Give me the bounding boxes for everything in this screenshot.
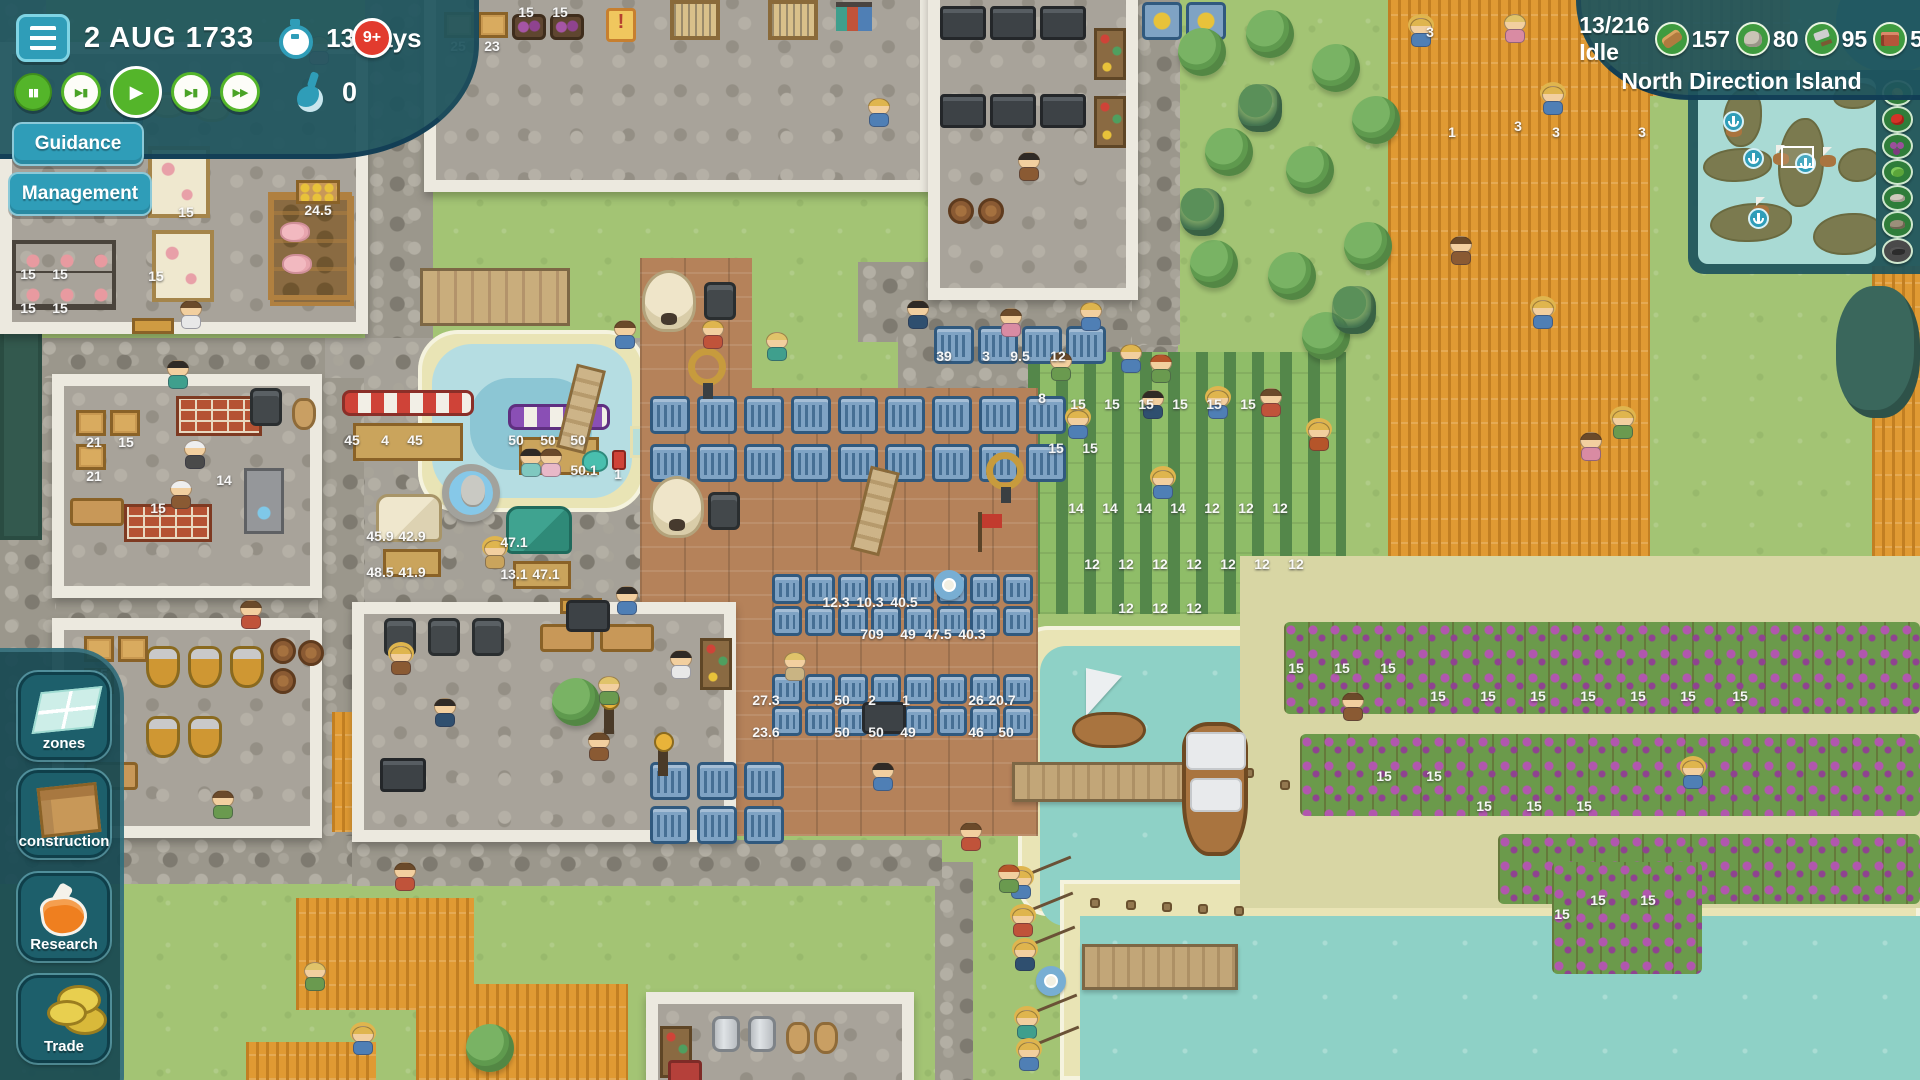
stock-label: 12 bbox=[1152, 556, 1168, 572]
stock-label: 15 bbox=[1590, 892, 1606, 908]
faster-button[interactable]: ▶▶ bbox=[220, 72, 260, 112]
science-flask-icon bbox=[295, 72, 325, 112]
barrel-sprite bbox=[270, 638, 296, 664]
resource-stone: 80 bbox=[1736, 22, 1799, 56]
resource-tools: 95 bbox=[1805, 22, 1868, 56]
population-idle: 13/216 Idle bbox=[1579, 12, 1649, 66]
boulder-icon[interactable] bbox=[1882, 211, 1913, 237]
tree-sprite bbox=[1246, 10, 1294, 58]
barrel-sprite bbox=[978, 198, 1004, 224]
stock-label: 21 bbox=[86, 468, 102, 484]
terrain-cropO bbox=[416, 984, 628, 1080]
villager[interactable] bbox=[1014, 1008, 1038, 1038]
stock-label: 47.5 bbox=[924, 626, 951, 642]
villager[interactable] bbox=[1306, 420, 1330, 450]
stock-label: 46 bbox=[968, 724, 984, 740]
stock-label: 15 bbox=[1580, 688, 1596, 704]
trade-label: Trade bbox=[44, 1038, 84, 1055]
stock-label: 15 bbox=[1172, 396, 1188, 412]
notification-badge[interactable]: 9+ bbox=[352, 18, 392, 58]
storage-bin[interactable] bbox=[885, 396, 925, 434]
villager[interactable] bbox=[1680, 758, 1704, 788]
tree-sprite bbox=[1286, 146, 1334, 194]
pine-sprite bbox=[1332, 286, 1376, 334]
stock-label: 15 bbox=[20, 266, 36, 282]
villager[interactable] bbox=[1012, 940, 1036, 970]
ropewheel-sprite bbox=[986, 452, 1024, 490]
minimap-island bbox=[1813, 213, 1876, 255]
stock-label: 15 bbox=[518, 4, 534, 20]
tree-sprite bbox=[1178, 28, 1226, 76]
lifebuoy-sprite bbox=[1036, 966, 1066, 996]
storage-bin[interactable] bbox=[805, 674, 835, 704]
villager[interactable] bbox=[1148, 352, 1172, 382]
villager[interactable] bbox=[586, 730, 610, 760]
zones-icon bbox=[32, 686, 103, 734]
villager[interactable] bbox=[1065, 408, 1089, 438]
stock-label: 50 bbox=[868, 724, 884, 740]
stock-label: 15 bbox=[20, 300, 36, 316]
machineblack-sprite bbox=[990, 6, 1036, 40]
location-name: North Direction Island bbox=[1621, 68, 1861, 95]
cabbage-icon[interactable] bbox=[1882, 159, 1913, 185]
stove-sprite bbox=[704, 282, 736, 320]
stock-label: 50 bbox=[508, 432, 524, 448]
warnsign-sprite bbox=[606, 8, 636, 42]
villager[interactable] bbox=[764, 330, 788, 360]
villager[interactable] bbox=[210, 788, 234, 818]
stock-label: 12 bbox=[1204, 500, 1220, 516]
storage-bin[interactable] bbox=[1003, 574, 1033, 604]
lantern-sprite bbox=[604, 700, 614, 734]
terrain-cobble bbox=[1132, 0, 1180, 345]
post-sprite bbox=[1234, 906, 1244, 916]
kiln-sprite bbox=[650, 476, 704, 538]
stock-label: 709 bbox=[860, 626, 883, 642]
stock-label: 12 bbox=[1254, 556, 1270, 572]
tree-sprite bbox=[1205, 128, 1253, 176]
storage-bin[interactable] bbox=[697, 396, 737, 434]
research-label: Research bbox=[30, 936, 98, 953]
research-flask-icon bbox=[38, 893, 89, 939]
loom-sprite bbox=[670, 0, 720, 40]
resource-bricks: 55 bbox=[1873, 22, 1920, 56]
stock-label: 13.1 bbox=[500, 566, 527, 582]
storage-bin[interactable] bbox=[697, 444, 737, 482]
counterbrick-sprite bbox=[124, 504, 212, 542]
villager[interactable] bbox=[1258, 386, 1282, 416]
villager[interactable] bbox=[1340, 690, 1364, 720]
storage-bin[interactable] bbox=[650, 806, 690, 844]
stock-label: 14 bbox=[1136, 500, 1152, 516]
anchor-icon bbox=[1723, 111, 1744, 132]
villager[interactable] bbox=[1016, 150, 1040, 180]
stock-label: 15 bbox=[1680, 688, 1696, 704]
anchor-icon bbox=[1748, 208, 1769, 229]
game-date: 2 AUG 1733 bbox=[84, 22, 254, 55]
stock-label: 3 bbox=[1638, 124, 1646, 140]
stock-label: 14 bbox=[1068, 500, 1084, 516]
stock-label: 12 bbox=[1186, 556, 1202, 572]
villager[interactable] bbox=[1448, 234, 1472, 264]
villager[interactable] bbox=[1010, 906, 1034, 936]
pine-sprite bbox=[1238, 84, 1282, 132]
stock-label: 15 bbox=[1476, 798, 1492, 814]
playback-controls: ▮▮▶▮▶▶▮▶▶ bbox=[14, 66, 260, 118]
research-button[interactable]: Research bbox=[18, 873, 110, 961]
clothesrack-sprite bbox=[836, 2, 872, 40]
canvas-sprite bbox=[152, 230, 214, 302]
storage-bin[interactable] bbox=[979, 396, 1019, 434]
stock-label: 15 bbox=[1380, 660, 1396, 676]
stock-label: 4 bbox=[381, 432, 389, 448]
stock-label: 42.9 bbox=[398, 528, 425, 544]
villager[interactable] bbox=[1016, 1040, 1040, 1070]
villager[interactable] bbox=[612, 318, 636, 348]
tree-sprite bbox=[466, 1024, 514, 1072]
tree-sprite bbox=[1312, 44, 1360, 92]
villager[interactable] bbox=[866, 96, 890, 126]
keg-sprite bbox=[748, 1016, 776, 1052]
storage-bin[interactable] bbox=[805, 706, 835, 736]
storage-bin[interactable] bbox=[932, 396, 972, 434]
shelfjars-sprite bbox=[1094, 28, 1126, 80]
keg-sprite bbox=[712, 1016, 740, 1052]
villager[interactable] bbox=[182, 438, 206, 468]
zones-button[interactable]: zones bbox=[18, 672, 110, 760]
storage-bin[interactable] bbox=[1003, 606, 1033, 636]
machineblack-sprite bbox=[990, 94, 1036, 128]
stock-label: 23.6 bbox=[752, 724, 779, 740]
stock-label: 15 bbox=[1480, 688, 1496, 704]
stock-label: 50 bbox=[834, 724, 850, 740]
terrain-cobble bbox=[935, 862, 973, 1080]
minimap-panel bbox=[1688, 70, 1920, 274]
villager[interactable] bbox=[958, 820, 982, 850]
pause-button[interactable]: ▮▮ bbox=[14, 73, 52, 111]
stock-label: 14 bbox=[216, 472, 232, 488]
stock-label: 24.5 bbox=[304, 202, 331, 218]
construction-button[interactable]: construction bbox=[18, 770, 110, 858]
game-viewport[interactable]: 151524.515151515252315152115211514154544… bbox=[0, 0, 1920, 1080]
stock-label: 3 bbox=[1514, 118, 1522, 134]
stock-label: 15 bbox=[1138, 396, 1154, 412]
villager[interactable] bbox=[1540, 84, 1564, 114]
still-sprite bbox=[188, 716, 222, 758]
storage-bin[interactable] bbox=[1066, 326, 1106, 364]
stock-label: 1 bbox=[1448, 124, 1456, 140]
storage-bin[interactable] bbox=[744, 396, 784, 434]
minimap[interactable] bbox=[1698, 78, 1876, 264]
ropewheel-sprite bbox=[688, 348, 726, 386]
villager[interactable] bbox=[596, 674, 620, 704]
villager[interactable] bbox=[432, 696, 456, 726]
storage-bin[interactable] bbox=[772, 574, 802, 604]
fast-button[interactable]: ▶▮ bbox=[171, 72, 211, 112]
terrain-water bbox=[1080, 916, 1920, 1080]
storage-bin[interactable] bbox=[744, 806, 784, 844]
lifebuoy-sprite bbox=[934, 570, 964, 600]
stock-label: 12 bbox=[1186, 600, 1202, 616]
play-button[interactable]: ▶ bbox=[110, 66, 162, 118]
stock-label: 15 bbox=[178, 204, 194, 220]
villager[interactable] bbox=[905, 298, 929, 328]
villager[interactable] bbox=[1578, 430, 1602, 460]
villager[interactable] bbox=[165, 358, 189, 388]
tree-sprite bbox=[1344, 222, 1392, 270]
stock-label: 40.3 bbox=[958, 626, 985, 642]
storage-bin[interactable] bbox=[772, 606, 802, 636]
villager[interactable] bbox=[1502, 12, 1526, 42]
stock-label: 50 bbox=[998, 724, 1014, 740]
stock-label: 21 bbox=[86, 434, 102, 450]
ship-sprite bbox=[1182, 722, 1248, 856]
stock-label: 15 bbox=[148, 268, 164, 284]
stock-label: 12 bbox=[1118, 600, 1134, 616]
stock-label: 47.1 bbox=[500, 534, 527, 550]
grapes-icon[interactable] bbox=[1882, 133, 1913, 159]
coal-icon[interactable] bbox=[1882, 238, 1913, 264]
tree-sprite bbox=[1352, 96, 1400, 144]
villager[interactable] bbox=[1118, 342, 1142, 372]
jug-sprite bbox=[292, 398, 316, 430]
resource-wood: 157 bbox=[1655, 22, 1730, 56]
guidance-button[interactable]: Guidance bbox=[12, 122, 144, 166]
jug-sprite bbox=[814, 1022, 838, 1054]
crate-sprite bbox=[76, 410, 106, 436]
post-sprite bbox=[1090, 898, 1100, 908]
stock-label: 49 bbox=[900, 724, 916, 740]
lantern-sprite bbox=[658, 742, 668, 776]
minimap-viewport[interactable] bbox=[1781, 146, 1814, 168]
post-sprite bbox=[1280, 780, 1290, 790]
machineblack-sprite bbox=[380, 758, 426, 792]
step-button[interactable]: ▶▮ bbox=[61, 72, 101, 112]
crate-sprite bbox=[110, 410, 140, 436]
storage-bin[interactable] bbox=[697, 806, 737, 844]
minimap-ship bbox=[1820, 155, 1836, 167]
villager[interactable] bbox=[700, 318, 724, 348]
stock-label: 27.3 bbox=[752, 692, 779, 708]
stock-label: 45.9 bbox=[366, 528, 393, 544]
stock-label: 3 bbox=[982, 348, 990, 364]
stove-sprite bbox=[472, 618, 504, 656]
minimap-island bbox=[1838, 148, 1876, 182]
jug-sprite bbox=[786, 1022, 810, 1054]
still-sprite bbox=[146, 646, 180, 688]
storage-bin[interactable] bbox=[937, 674, 967, 704]
stock-label: 15 bbox=[1070, 396, 1086, 412]
stock-label: 12 bbox=[1050, 348, 1066, 364]
stallred-sprite bbox=[342, 390, 474, 416]
wood-icon bbox=[1655, 22, 1689, 56]
construction-icon bbox=[37, 782, 102, 838]
stock-label: 15 bbox=[1640, 892, 1656, 908]
stock-label: 15 bbox=[1048, 440, 1064, 456]
villager[interactable] bbox=[668, 648, 692, 678]
storage-bin[interactable] bbox=[932, 444, 972, 482]
stock-label: 20.7 bbox=[988, 692, 1015, 708]
trough-sprite bbox=[296, 180, 340, 204]
terrain-vines bbox=[1552, 862, 1702, 974]
villager[interactable] bbox=[538, 446, 562, 476]
world-map[interactable]: 151524.515151515252315152115211514154544… bbox=[0, 0, 1920, 1080]
zones-label: zones bbox=[43, 735, 86, 752]
stove-sprite bbox=[708, 492, 740, 530]
villager[interactable] bbox=[998, 306, 1022, 336]
stock-label: 8 bbox=[1038, 390, 1046, 406]
tree-sprite bbox=[1190, 240, 1238, 288]
crate-sprite bbox=[478, 12, 508, 38]
stock-label: 45 bbox=[344, 432, 360, 448]
anchor-icon bbox=[1743, 148, 1764, 169]
flag-sprite bbox=[976, 512, 1002, 552]
stock-label: 2 bbox=[868, 692, 876, 708]
storage-bin[interactable] bbox=[805, 606, 835, 636]
stock-label: 3 bbox=[1426, 24, 1434, 40]
villager[interactable] bbox=[1610, 408, 1634, 438]
storage-bin[interactable] bbox=[838, 396, 878, 434]
still-sprite bbox=[146, 716, 180, 758]
machineblack-sprite bbox=[1040, 94, 1086, 128]
shelfjars-sprite bbox=[1094, 96, 1126, 148]
stock-label: 23 bbox=[484, 38, 500, 54]
stock-label: 45 bbox=[407, 432, 423, 448]
storage-bin[interactable] bbox=[791, 396, 831, 434]
management-button[interactable]: Management bbox=[8, 172, 152, 216]
stove-sprite bbox=[428, 618, 460, 656]
stock-label: 39 bbox=[936, 348, 952, 364]
stock-label: 14 bbox=[1102, 500, 1118, 516]
barrel-sprite bbox=[298, 640, 324, 666]
sink-sprite bbox=[244, 468, 284, 534]
villager[interactable] bbox=[1530, 298, 1554, 328]
stock-label: 12 bbox=[1272, 500, 1288, 516]
terrain-vines bbox=[1300, 734, 1920, 816]
cartdark-sprite bbox=[566, 600, 610, 632]
trade-button[interactable]: Trade bbox=[18, 975, 110, 1063]
post-sprite bbox=[1162, 902, 1172, 912]
villager[interactable] bbox=[996, 862, 1020, 892]
villager[interactable] bbox=[1150, 468, 1174, 498]
machinered-sprite bbox=[668, 1060, 702, 1080]
tools-count: 95 bbox=[1842, 26, 1868, 53]
menu-icon[interactable] bbox=[16, 14, 70, 62]
fountain-sprite bbox=[442, 464, 500, 522]
stock-label: 49 bbox=[900, 626, 916, 642]
storage-bin[interactable] bbox=[744, 762, 784, 800]
storage-bin[interactable] bbox=[744, 444, 784, 482]
wood-count: 157 bbox=[1692, 26, 1730, 53]
trade-coins-icon bbox=[47, 1000, 87, 1026]
villager[interactable] bbox=[388, 644, 412, 674]
stock-label: 15 bbox=[1576, 798, 1592, 814]
stock-label: 15 bbox=[1334, 660, 1350, 676]
post-sprite bbox=[1198, 904, 1208, 914]
bricks-count: 55 bbox=[1910, 26, 1920, 53]
villager[interactable] bbox=[178, 298, 202, 328]
machineblack-sprite bbox=[940, 94, 986, 128]
storage-bin[interactable] bbox=[697, 762, 737, 800]
kiln-sprite bbox=[642, 270, 696, 332]
stock-label: 15 bbox=[1530, 688, 1546, 704]
stock-label: 15 bbox=[150, 500, 166, 516]
villager[interactable] bbox=[350, 1024, 374, 1054]
villager[interactable] bbox=[614, 584, 638, 614]
stopwatch-icon bbox=[278, 19, 312, 57]
tools-icon bbox=[1805, 22, 1839, 56]
minimap-resource-icons bbox=[1876, 78, 1918, 266]
stock-label: 41.9 bbox=[398, 564, 425, 580]
stock-label: 50 bbox=[570, 432, 586, 448]
pig-sprite bbox=[282, 254, 312, 274]
stock-label: 9.5 bbox=[1010, 348, 1029, 364]
stone-icon bbox=[1736, 22, 1770, 56]
pierH2-sprite bbox=[1082, 944, 1238, 990]
terrain-cobble bbox=[352, 840, 942, 886]
doorT-sprite bbox=[132, 318, 174, 334]
stone-count: 80 bbox=[1773, 26, 1799, 53]
villager[interactable] bbox=[782, 650, 806, 680]
science-count: 0 bbox=[342, 77, 357, 108]
stock-label: 40.5 bbox=[890, 594, 917, 610]
villager[interactable] bbox=[168, 478, 192, 508]
terrain-cropO bbox=[1388, 0, 1650, 568]
storage-bin[interactable] bbox=[650, 762, 690, 800]
stock-label: 15 bbox=[118, 434, 134, 450]
villager[interactable] bbox=[392, 860, 416, 890]
stock-label: 15 bbox=[1206, 396, 1222, 412]
stock-label: 14 bbox=[1170, 500, 1186, 516]
stock-label: 10.3 bbox=[856, 594, 883, 610]
stock-label: 26 bbox=[968, 692, 984, 708]
stock-label: 15 bbox=[52, 266, 68, 282]
stock-label: 50 bbox=[540, 432, 556, 448]
villager[interactable] bbox=[1078, 300, 1102, 330]
tree-sprite bbox=[552, 678, 600, 726]
storage-bin[interactable] bbox=[1142, 2, 1182, 40]
pig-sprite bbox=[280, 222, 310, 242]
stock-label: 15 bbox=[1104, 396, 1120, 412]
storage-bin[interactable] bbox=[650, 396, 690, 434]
stock-label: 12 bbox=[1084, 556, 1100, 572]
resource-chips: 157809555 bbox=[1655, 22, 1920, 56]
stone-icon[interactable] bbox=[1882, 185, 1913, 211]
table-sprite bbox=[70, 498, 124, 526]
still-sprite bbox=[188, 646, 222, 688]
stock-label: 47.1 bbox=[532, 566, 559, 582]
stock-label: 15 bbox=[1288, 660, 1304, 676]
villager[interactable] bbox=[302, 960, 326, 990]
bushdark-sprite bbox=[1836, 286, 1920, 418]
machineblack-sprite bbox=[1040, 6, 1086, 40]
stock-label: 12 bbox=[1118, 556, 1134, 572]
villager[interactable] bbox=[238, 598, 262, 628]
villager[interactable] bbox=[870, 760, 894, 790]
stock-label: 15 bbox=[1430, 688, 1446, 704]
post-sprite bbox=[1126, 900, 1136, 910]
barrel-sprite bbox=[948, 198, 974, 224]
apple-icon[interactable] bbox=[1882, 106, 1913, 132]
stove-sprite bbox=[250, 388, 282, 426]
storage-bin[interactable] bbox=[791, 444, 831, 482]
stock-label: 12.3 bbox=[822, 594, 849, 610]
bridgeH-sprite bbox=[420, 268, 570, 326]
storage-bin[interactable] bbox=[970, 574, 1000, 604]
storage-bin[interactable] bbox=[937, 706, 967, 736]
stock-label: 1 bbox=[902, 692, 910, 708]
top-right-hud-panel: 13/216 Idle 157809555 North Direction Is… bbox=[1576, 0, 1920, 100]
